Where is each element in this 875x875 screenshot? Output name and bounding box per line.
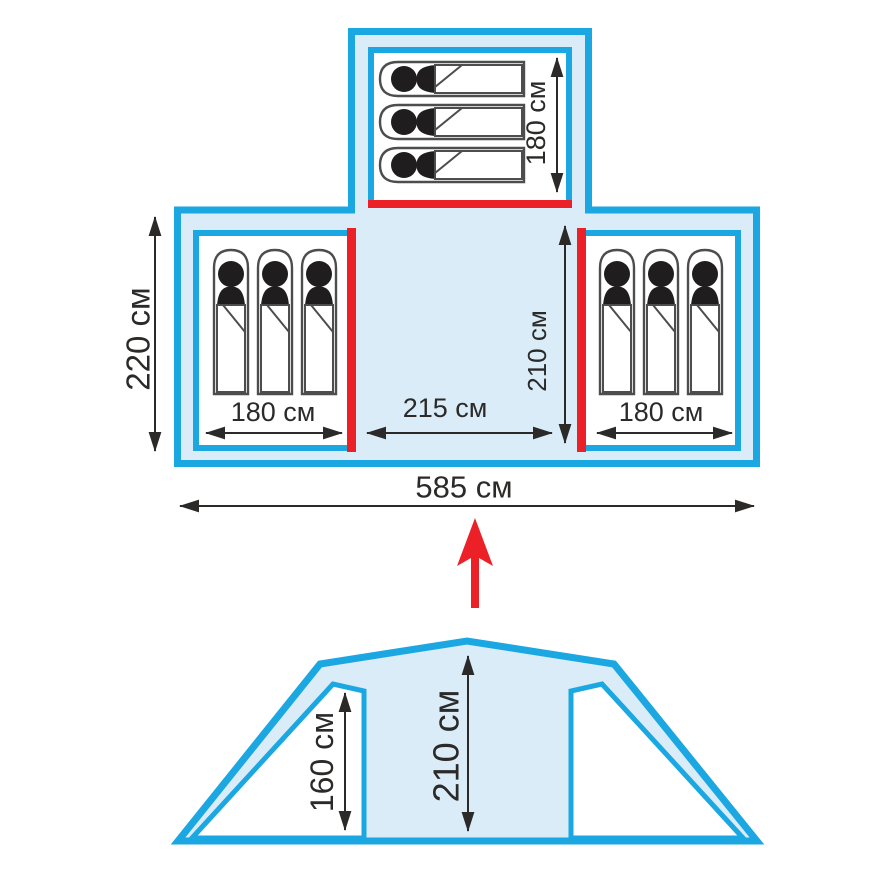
sleeping-bag	[380, 100, 524, 139]
tent-dimensions-diagram: 180 см 180 см 180 см 215 см 210 см	[0, 0, 875, 875]
left-room-width-label: 180 см	[231, 397, 316, 427]
sleeping-bag	[214, 250, 248, 394]
top-room: 180 см	[368, 50, 572, 208]
right-room-width-label: 180 см	[619, 397, 704, 427]
left-room-door	[347, 228, 356, 452]
center-depth-label: 210 см	[522, 310, 552, 391]
right-room: 180 см	[577, 228, 738, 452]
sleeping-bag	[600, 250, 634, 394]
overall-depth: 220 см	[120, 217, 157, 451]
sleeping-bag	[644, 250, 678, 394]
center-width-label: 215 см	[403, 393, 488, 423]
right-room-door	[577, 228, 586, 452]
sleeping-bag	[688, 250, 722, 394]
side-height-label: 160 см	[304, 712, 340, 812]
elevation-right-panel	[571, 684, 743, 838]
overall-depth-label: 220 см	[120, 287, 157, 390]
sleeping-bag	[302, 250, 336, 394]
sleeping-bag	[380, 143, 524, 182]
left-room: 180 см	[196, 228, 356, 452]
sleeping-bag	[380, 57, 524, 96]
center-height-label: 210 см	[426, 690, 467, 803]
top-room-length-label: 180 см	[521, 81, 551, 166]
overall-width: 585 см	[180, 470, 754, 507]
overall-width-label: 585 см	[415, 470, 512, 505]
diagram-canvas: 180 см 180 см 180 см 215 см 210 см	[0, 0, 875, 875]
side-height: 160 см	[304, 693, 345, 830]
sleeping-bag	[258, 250, 292, 394]
floor-plan: 180 см 180 см 180 см 215 см 210 см	[120, 32, 757, 507]
view-link-arrow-icon	[457, 518, 493, 608]
front-elevation: 160 см 210 см	[178, 641, 757, 841]
top-room-door	[368, 200, 572, 208]
